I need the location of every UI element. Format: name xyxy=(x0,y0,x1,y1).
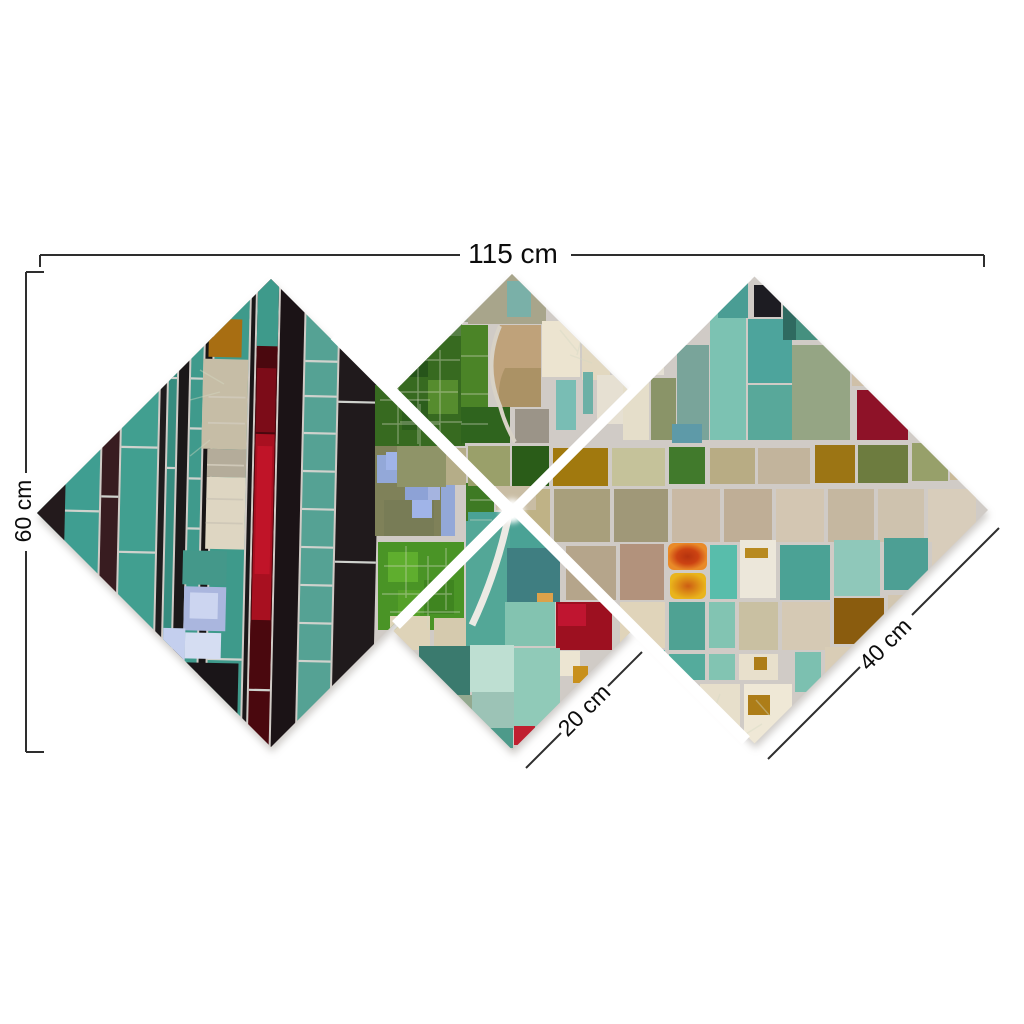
svg-text:60 cm: 60 cm xyxy=(10,480,36,543)
svg-text:115 cm: 115 cm xyxy=(468,238,558,269)
